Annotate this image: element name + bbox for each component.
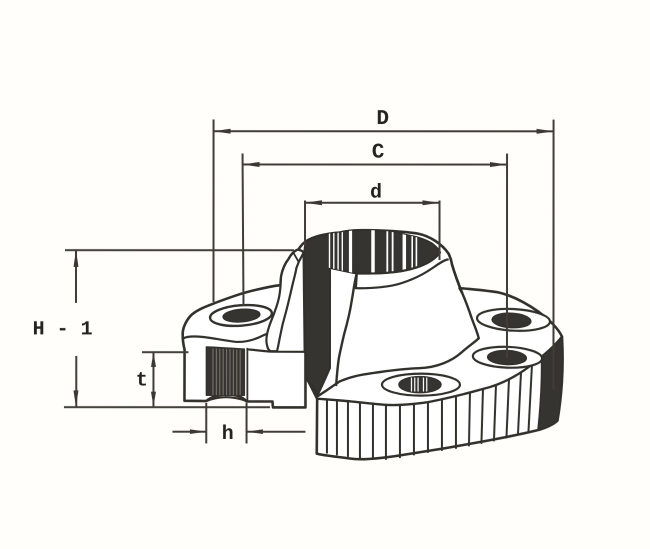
- svg-text:t: t: [136, 369, 148, 392]
- svg-text:D: D: [376, 108, 389, 131]
- svg-text:C: C: [372, 142, 385, 165]
- svg-text:h: h: [222, 423, 234, 446]
- svg-text:d: d: [370, 182, 382, 205]
- svg-text:H - 1: H - 1: [33, 318, 93, 341]
